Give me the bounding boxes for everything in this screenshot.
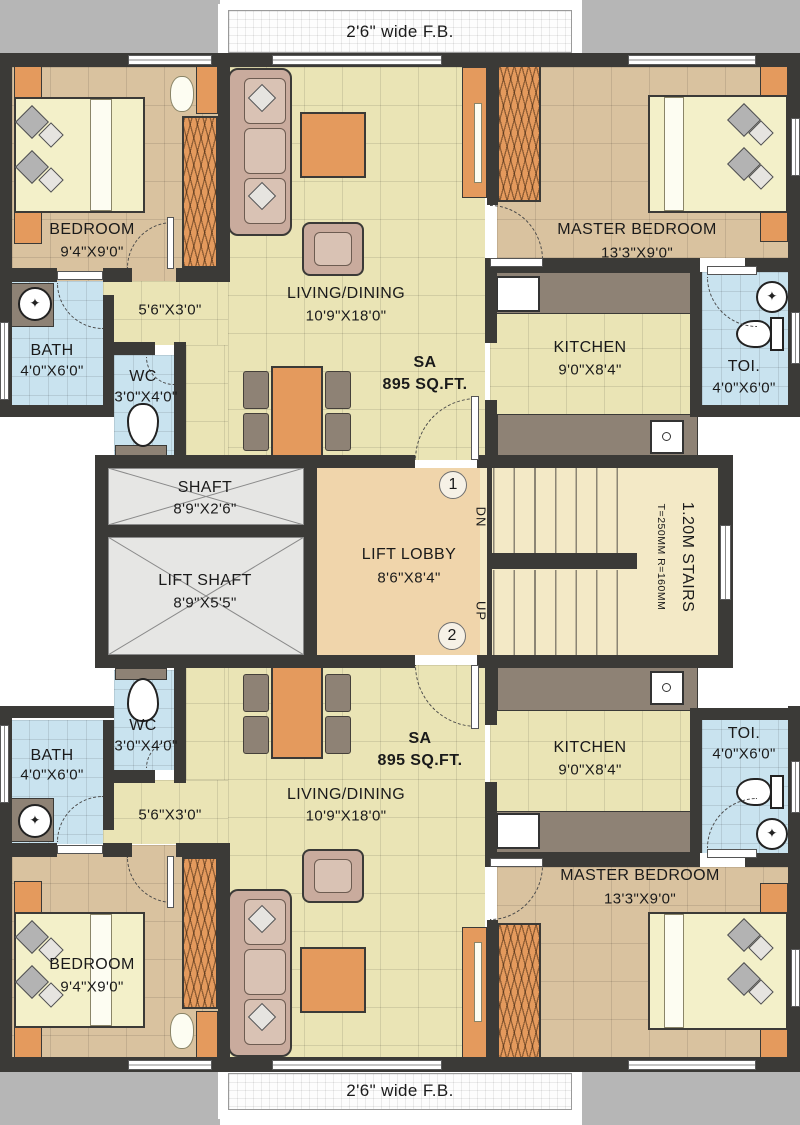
wall	[174, 665, 186, 783]
kitchen-bottom-dims: 9'0"X8'4"	[558, 762, 621, 779]
floor-plan: 2'6" wide F.B. 2'6" wide F.B.	[0, 0, 800, 1125]
stove	[650, 420, 684, 454]
sa-bottom-area: 895 SQ.FT.	[378, 752, 463, 770]
nightstand	[760, 212, 788, 242]
flat1-entry-marker: 1	[439, 471, 467, 499]
bath-bottom-label: BATH	[30, 747, 73, 765]
wardrobe-top-left	[182, 116, 218, 268]
door-leaf-bath-bottom	[57, 845, 103, 854]
living-top-dims: 10'9"X18'0"	[306, 308, 387, 325]
window	[791, 761, 800, 813]
door-leaf-bedroom-bottom	[167, 856, 174, 908]
wc-bottom-label: WC	[129, 717, 156, 735]
kitchen-sink	[496, 813, 540, 849]
bath-top-label: BATH	[30, 342, 73, 360]
master-bottom-label: MASTER BEDROOM	[560, 867, 719, 885]
wall	[485, 782, 497, 853]
kitchen-sink	[496, 276, 540, 312]
wardrobe-master-top	[497, 64, 541, 202]
wall	[487, 920, 498, 1072]
stairs-up-label: UP	[474, 601, 489, 621]
wall	[487, 468, 492, 655]
window	[791, 118, 800, 176]
wall	[485, 400, 497, 460]
kitchen-bottom-label: KITCHEN	[553, 739, 626, 757]
wall	[304, 455, 317, 668]
wall	[95, 655, 415, 668]
window	[128, 55, 212, 65]
stairs-dn-label: DN	[474, 507, 489, 528]
passage-top-dims: 5'6"X3'0"	[138, 302, 201, 319]
window	[791, 949, 800, 1007]
dining-chair	[325, 413, 351, 451]
wall	[690, 708, 800, 720]
side-table	[170, 76, 194, 112]
door-leaf-toilet-bottom	[707, 849, 757, 858]
wall	[0, 405, 114, 417]
door-leaf-bath-top	[57, 271, 103, 280]
passage-top-floor2	[186, 345, 228, 460]
wall	[176, 843, 230, 857]
wall	[0, 706, 114, 718]
living-top-label: LIVING/DINING	[287, 285, 405, 303]
dresser	[196, 1011, 218, 1061]
wc-bottom-dims: 3'0"X4'0"	[114, 738, 177, 755]
wc-top-dims: 3'0"X4'0"	[114, 389, 177, 406]
coffee-table-top	[300, 112, 366, 178]
toilet-sink-top	[756, 281, 788, 313]
toilet-bottom-label: TOI.	[728, 725, 760, 743]
dining-table-bottom	[271, 663, 323, 759]
window	[791, 312, 800, 364]
wall	[477, 655, 733, 668]
wall	[95, 525, 317, 537]
lift-lobby-label: LIFT LOBBY	[362, 546, 456, 564]
living-bottom-dims: 10'9"X18'0"	[306, 808, 387, 825]
passage-bottom-dims: 5'6"X3'0"	[138, 807, 201, 824]
door-leaf-master-bottom	[490, 858, 543, 867]
window	[628, 1060, 756, 1070]
wall	[95, 455, 415, 468]
window	[0, 725, 9, 803]
wall	[690, 708, 702, 853]
outside-block-bottom-right	[582, 1072, 800, 1125]
bath-sink-bottom	[18, 804, 52, 838]
tv-top	[474, 103, 482, 183]
lift-shaft-dims: 8'9"X5'5"	[173, 595, 236, 612]
stairs-note: T=250MM R=160MM	[655, 504, 667, 611]
bed-sheet	[664, 97, 684, 211]
door-leaf-flat2	[471, 665, 479, 729]
wardrobe-bottom-left	[182, 857, 218, 1009]
stairs-flight-down	[493, 570, 637, 655]
window	[272, 1060, 442, 1070]
wc-toilet-bottom	[127, 678, 159, 722]
bed-sheet	[664, 914, 684, 1028]
armchair-cushion	[314, 232, 352, 266]
dresser	[196, 64, 218, 114]
flower-bed-top-label: 2'6" wide F.B.	[346, 22, 453, 42]
door-leaf-toilet-top	[707, 266, 757, 275]
sofa-cushion	[244, 949, 286, 995]
wall	[103, 342, 155, 355]
wall	[218, 845, 230, 1067]
wall	[487, 53, 498, 205]
door-leaf-flat1	[471, 396, 479, 460]
flower-bed-bottom-label: 2'6" wide F.B.	[346, 1081, 453, 1101]
wall	[103, 268, 132, 282]
outside-block-bottom-left	[0, 1072, 220, 1125]
wall	[218, 53, 230, 281]
side-table	[170, 1013, 194, 1049]
wall	[176, 268, 230, 282]
window	[720, 525, 731, 600]
dining-chair	[243, 674, 269, 712]
dining-chair	[325, 371, 351, 409]
stairs-label: 1.20M STAIRS	[678, 502, 696, 612]
window	[128, 1060, 212, 1070]
shaft-label: SHAFT	[178, 479, 232, 497]
lift-lobby-dims: 8'6"X8'4"	[377, 570, 440, 587]
sa-top-label: SA	[413, 354, 436, 372]
master-bottom-dims: 13'3"X9'0"	[604, 891, 676, 908]
wall	[95, 455, 108, 668]
wall	[0, 843, 57, 857]
nightstand	[14, 66, 42, 98]
outside-block-top-right	[582, 0, 800, 53]
stairs-flight-up	[493, 468, 637, 553]
kitchen-top-dims: 9'0"X8'4"	[558, 362, 621, 379]
toilet-sink-bottom	[756, 818, 788, 850]
flat2-entry-marker: 2	[438, 622, 466, 650]
wall	[103, 770, 155, 783]
dining-chair	[325, 674, 351, 712]
nightstand	[14, 1027, 42, 1059]
passage-bottom-floor2	[186, 665, 228, 780]
master-top-label: MASTER BEDROOM	[557, 221, 716, 239]
outside-block-top-left	[0, 0, 220, 53]
nightstand	[760, 66, 788, 96]
wall	[0, 268, 57, 282]
bath-sink-top	[18, 287, 52, 321]
shaft-dims: 8'9"X2'6"	[173, 501, 236, 518]
wall	[690, 405, 800, 417]
window	[272, 55, 442, 65]
nightstand	[760, 883, 788, 913]
living-bottom-label: LIVING/DINING	[287, 786, 405, 804]
wc-top-label: WC	[129, 368, 156, 386]
coffee-table-bottom	[300, 947, 366, 1013]
window	[628, 55, 756, 65]
toilet-bottom-dims: 4'0"X6'0"	[712, 746, 775, 763]
dining-chair	[243, 716, 269, 754]
door-leaf-bedroom-top	[167, 217, 174, 269]
lift-shaft-label: LIFT SHAFT	[158, 572, 252, 590]
sa-top-area: 895 SQ.FT.	[383, 376, 468, 394]
wall	[103, 843, 132, 857]
toilet-tank-bottom	[770, 775, 784, 809]
stove	[650, 671, 684, 705]
bedroom-bottom-label: BEDROOM	[49, 956, 134, 974]
wall	[485, 665, 497, 725]
nightstand	[14, 212, 42, 244]
nightstand	[14, 881, 42, 913]
bedroom-top-label: BEDROOM	[49, 221, 134, 239]
bath-bottom-dims: 4'0"X6'0"	[20, 767, 83, 784]
nightstand	[760, 1029, 788, 1059]
dining-chair	[325, 716, 351, 754]
toilet-top-label: TOI.	[728, 358, 760, 376]
bedroom-top-dims: 9'4"X9'0"	[60, 244, 123, 261]
toilet-top-dims: 4'0"X6'0"	[712, 380, 775, 397]
dining-chair	[243, 413, 269, 451]
tv-bottom	[474, 942, 482, 1022]
door-leaf-master-top	[490, 258, 543, 267]
wall	[690, 272, 702, 417]
bedroom-bottom-dims: 9'4"X9'0"	[60, 979, 123, 996]
kitchen-top-label: KITCHEN	[553, 339, 626, 357]
armchair-cushion	[314, 859, 352, 893]
dining-table-top	[271, 366, 323, 462]
bed-sheet	[90, 99, 112, 211]
wardrobe-master-bottom	[497, 923, 541, 1061]
toilet-tank-top	[770, 317, 784, 351]
sofa-cushion	[244, 128, 286, 174]
wall	[485, 272, 497, 343]
stairs-landing-wall	[487, 553, 637, 569]
window	[0, 322, 9, 400]
master-top-dims: 13'3"X9'0"	[601, 245, 673, 262]
sa-bottom-label: SA	[408, 730, 431, 748]
dining-chair	[243, 371, 269, 409]
bath-top-dims: 4'0"X6'0"	[20, 363, 83, 380]
wall	[477, 455, 733, 468]
